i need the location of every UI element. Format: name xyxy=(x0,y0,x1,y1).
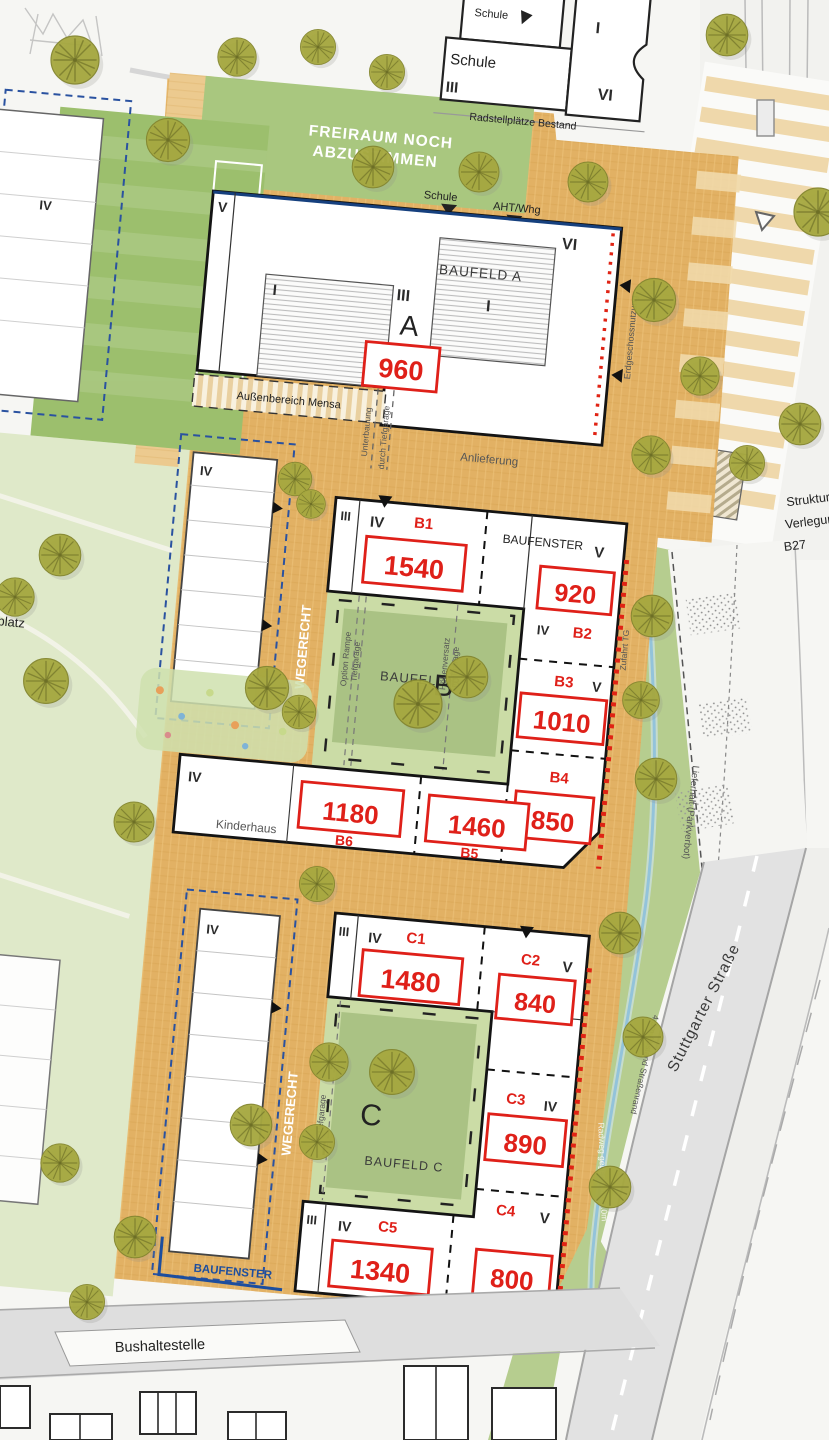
site-plan-canvas: Bushaltestelle Lieferhalt (Parkverbot) S… xyxy=(0,0,829,1440)
b5-label: B5 xyxy=(460,844,479,862)
c2-area-value: 840 xyxy=(513,988,557,1020)
a-letter: A xyxy=(399,310,421,343)
bushaltestelle-bottom-label: Bushaltestelle xyxy=(115,1337,206,1356)
c5-floor-iv: IV xyxy=(337,1218,352,1235)
existing1-floor-iv: IV xyxy=(199,463,213,479)
b2-area-box: 920 xyxy=(537,566,615,615)
b1-area-value: 1540 xyxy=(383,550,446,585)
b3-area-box: 1010 xyxy=(517,693,607,745)
c-courtyard-inner xyxy=(326,1012,477,1200)
b6-label: B6 xyxy=(334,832,353,850)
c1-floor-iv: IV xyxy=(368,929,383,946)
site-plan: Bushaltestelle Lieferhalt (Parkverbot) S… xyxy=(0,0,829,1440)
c-letter: C xyxy=(359,1098,384,1133)
c3-area-value: 890 xyxy=(502,1127,548,1161)
b5-area-value: 1460 xyxy=(447,809,507,844)
b1-label: B1 xyxy=(413,515,434,534)
b1-area-box: 1540 xyxy=(363,536,467,591)
a-area-box: 960 xyxy=(362,341,440,392)
b6-area-value: 1180 xyxy=(321,795,380,830)
c1-area-value: 1480 xyxy=(379,963,442,998)
b27-label: B27 xyxy=(783,537,807,554)
b6-area-box: 1180 xyxy=(298,781,404,836)
a-floor-vi: VI xyxy=(561,236,578,254)
b2-floor-v: V xyxy=(593,544,605,562)
b3-label: B3 xyxy=(554,673,575,692)
c1-label: C1 xyxy=(406,930,427,949)
a-area-value: 960 xyxy=(377,353,425,387)
c4-label: C4 xyxy=(495,1202,516,1221)
a-floor-iii: III xyxy=(396,287,411,305)
b2-floor-iv: IV xyxy=(536,622,550,638)
c3-floor-iv: IV xyxy=(543,1098,558,1115)
b4-area-value: 850 xyxy=(530,804,576,838)
lieferhalt-zone: Lieferhalt (Parkverbot) xyxy=(668,540,808,872)
c-floor-iii: III xyxy=(338,924,350,939)
c2-floor-v: V xyxy=(562,959,574,977)
b5-area-box: 1460 xyxy=(425,795,529,850)
c5-floor-iii: III xyxy=(306,1213,318,1228)
existing2-floor-iv: IV xyxy=(206,921,220,937)
b2-area-value: 920 xyxy=(553,579,597,611)
kinderhaus-floor-iv: IV xyxy=(188,768,203,785)
c5-area-value: 1340 xyxy=(349,1254,412,1289)
c2-label: C2 xyxy=(520,951,541,970)
c5-label: C5 xyxy=(377,1218,398,1237)
schule-floors-iii: III xyxy=(445,79,459,97)
c3-label: C3 xyxy=(506,1090,527,1109)
c2-area-box: 840 xyxy=(496,974,576,1025)
b3-area-value: 1010 xyxy=(532,704,592,739)
b2-label: B2 xyxy=(572,624,593,643)
c5-area-box: 1340 xyxy=(329,1240,433,1295)
building-a-hatch-right xyxy=(429,238,555,366)
c4-floor-v: V xyxy=(539,1210,551,1228)
b1-floor-iv: IV xyxy=(369,514,385,532)
schule-floor-vi: VI xyxy=(597,86,614,104)
bus-shelter-icon xyxy=(757,100,774,136)
existing-nw-floor-iv: IV xyxy=(39,197,53,213)
b4-label: B4 xyxy=(549,769,570,788)
c3-area-box: 890 xyxy=(485,1114,567,1167)
b-floor-iii: III xyxy=(340,509,352,524)
c1-area-box: 1480 xyxy=(359,950,463,1005)
